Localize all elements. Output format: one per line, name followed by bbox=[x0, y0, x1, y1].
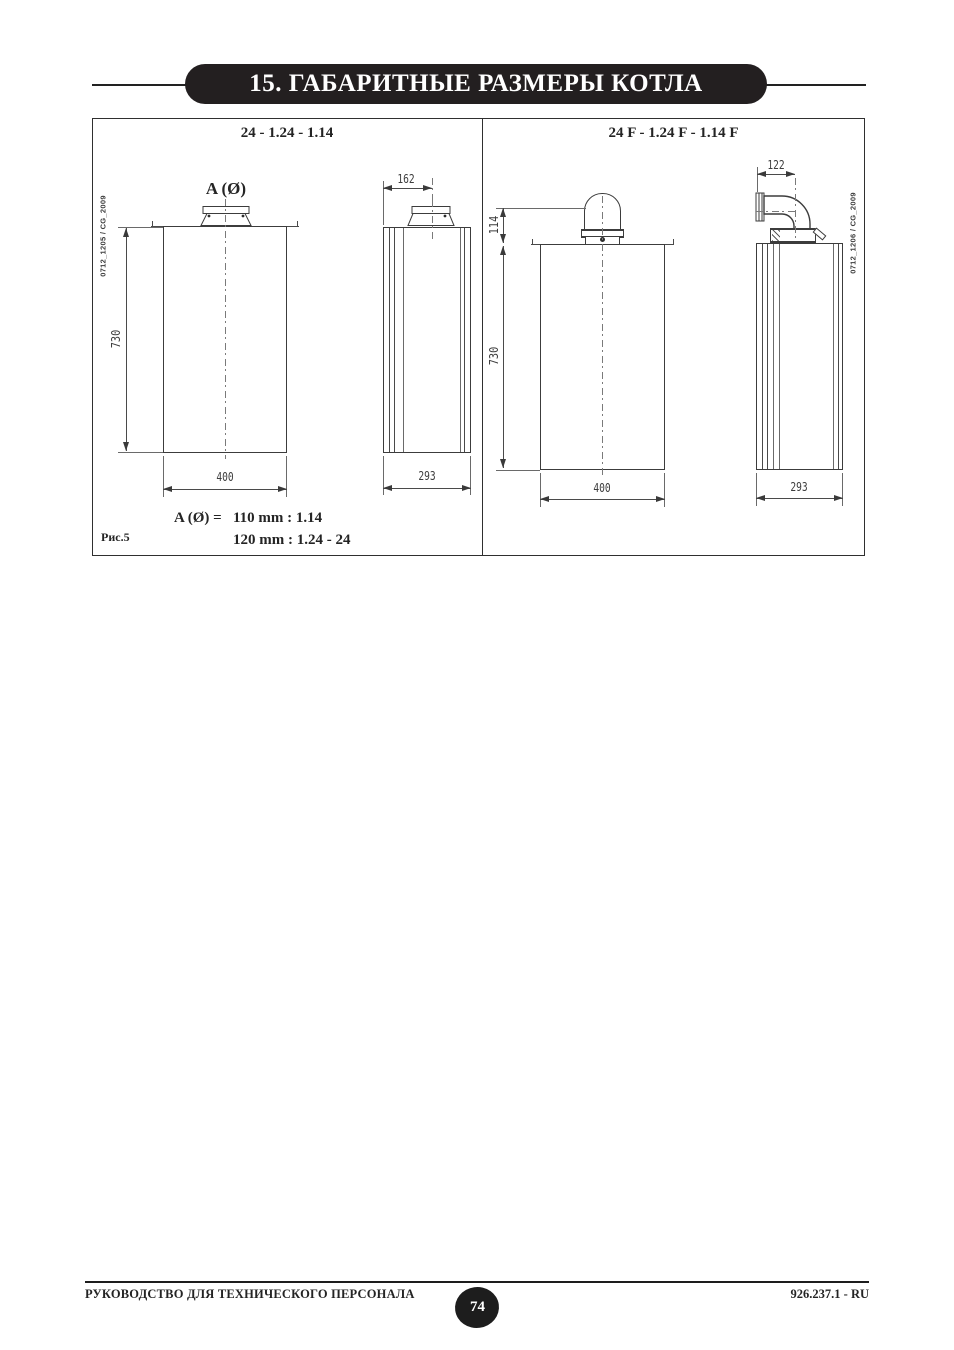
outline bbox=[833, 244, 834, 469]
arrowhead bbox=[123, 228, 129, 237]
arrowhead bbox=[656, 496, 665, 502]
left-front-centerline bbox=[225, 199, 226, 459]
extension-line bbox=[118, 452, 163, 453]
tick bbox=[297, 221, 298, 227]
dimension-line bbox=[383, 488, 471, 489]
right-panel-header: 24 F - 1.24 F - 1.14 F bbox=[482, 125, 865, 142]
left-front-flue-collar bbox=[196, 205, 256, 227]
outline bbox=[762, 244, 763, 469]
dim-height-left-front: 730 bbox=[109, 330, 123, 348]
dim-depth-right-side: 293 bbox=[775, 480, 823, 494]
dim-width-right-front: 400 bbox=[578, 481, 626, 495]
flue-legend-line2: 120 mm : 1.24 - 24 bbox=[233, 532, 350, 549]
footer-document-title: РУКОВОДСТВО ДЛЯ ТЕХНИЧЕСКОГО ПЕРСОНАЛА bbox=[85, 1287, 415, 1302]
outline bbox=[464, 228, 465, 452]
arrowhead bbox=[278, 486, 287, 492]
dim-depth-left-side: 293 bbox=[403, 469, 451, 483]
figure-caption: Рис.5 bbox=[101, 530, 130, 545]
outline bbox=[838, 244, 839, 469]
extension-line bbox=[756, 473, 757, 506]
dim-top-right-side: 122 bbox=[760, 158, 792, 172]
arrowhead bbox=[462, 485, 471, 491]
outline bbox=[389, 228, 390, 452]
extension-line bbox=[496, 470, 540, 471]
right-front-centerline bbox=[602, 196, 603, 476]
arrowhead bbox=[756, 495, 765, 501]
tick bbox=[673, 239, 674, 245]
flue-legend-label: A (Ø) = bbox=[174, 510, 222, 527]
dimension-line bbox=[163, 489, 287, 490]
collar-hatch bbox=[772, 230, 780, 241]
outline bbox=[773, 244, 774, 469]
arrowhead bbox=[123, 442, 129, 451]
left-panel-header: 24 - 1.24 - 1.14 bbox=[92, 125, 482, 142]
section-title: 15. ГАБАРИТНЫЕ РАЗМЕРЫ КОТЛА bbox=[249, 70, 702, 98]
footer-document-code: 926.237.1 - RU bbox=[791, 1287, 869, 1302]
extension-line bbox=[842, 473, 843, 506]
arrowhead bbox=[383, 485, 392, 491]
arrowhead bbox=[500, 459, 506, 468]
arrowhead bbox=[163, 486, 172, 492]
dim-top-left-side: 162 bbox=[390, 172, 422, 186]
left-drawing-code: 0712_1205 / CG_2009 bbox=[99, 195, 108, 277]
outline bbox=[460, 228, 461, 452]
dimension-line bbox=[503, 246, 504, 468]
arrowhead bbox=[500, 234, 506, 243]
flue-centerline bbox=[432, 200, 433, 240]
footer-rule bbox=[85, 1281, 869, 1283]
dimension-line bbox=[540, 499, 665, 500]
left-side-boiler-outline bbox=[383, 227, 471, 453]
dimension-line bbox=[126, 228, 127, 451]
section-title-banner: 15. ГАБАРИТНЫЕ РАЗМЕРЫ КОТЛА bbox=[185, 64, 767, 104]
dimension-line bbox=[756, 498, 843, 499]
outline bbox=[394, 228, 395, 452]
right-side-boiler-outline bbox=[756, 243, 843, 470]
elbow-centerline bbox=[795, 178, 796, 242]
arrowhead bbox=[540, 496, 549, 502]
tick bbox=[532, 239, 533, 245]
arrowhead bbox=[423, 185, 432, 191]
outline bbox=[779, 244, 780, 469]
dim-flue-offset-right-front: 114 bbox=[487, 216, 501, 234]
manual-page: 15. ГАБАРИТНЫЕ РАЗМЕРЫ КОТЛА 24 - 1.24 -… bbox=[0, 0, 954, 1350]
flue-diameter-label: A (Ø) bbox=[161, 179, 291, 199]
dim-width-left-front: 400 bbox=[201, 470, 249, 484]
figure-divider bbox=[482, 118, 483, 556]
arrowhead bbox=[834, 495, 843, 501]
dim-height-right-front: 730 bbox=[487, 347, 501, 365]
elbow-centerline-h bbox=[756, 211, 796, 212]
outline bbox=[403, 228, 404, 452]
extension-line bbox=[432, 178, 433, 200]
right-drawing-code: 0712_1206 / CG_2009 bbox=[849, 192, 858, 274]
extension-line bbox=[496, 208, 586, 209]
flue-legend-line1: 110 mm : 1.14 bbox=[233, 510, 322, 527]
outline bbox=[767, 244, 768, 469]
arrowhead bbox=[500, 246, 506, 255]
page-number-badge: 74 bbox=[452, 1284, 501, 1331]
page-number: 74 bbox=[470, 1299, 485, 1316]
